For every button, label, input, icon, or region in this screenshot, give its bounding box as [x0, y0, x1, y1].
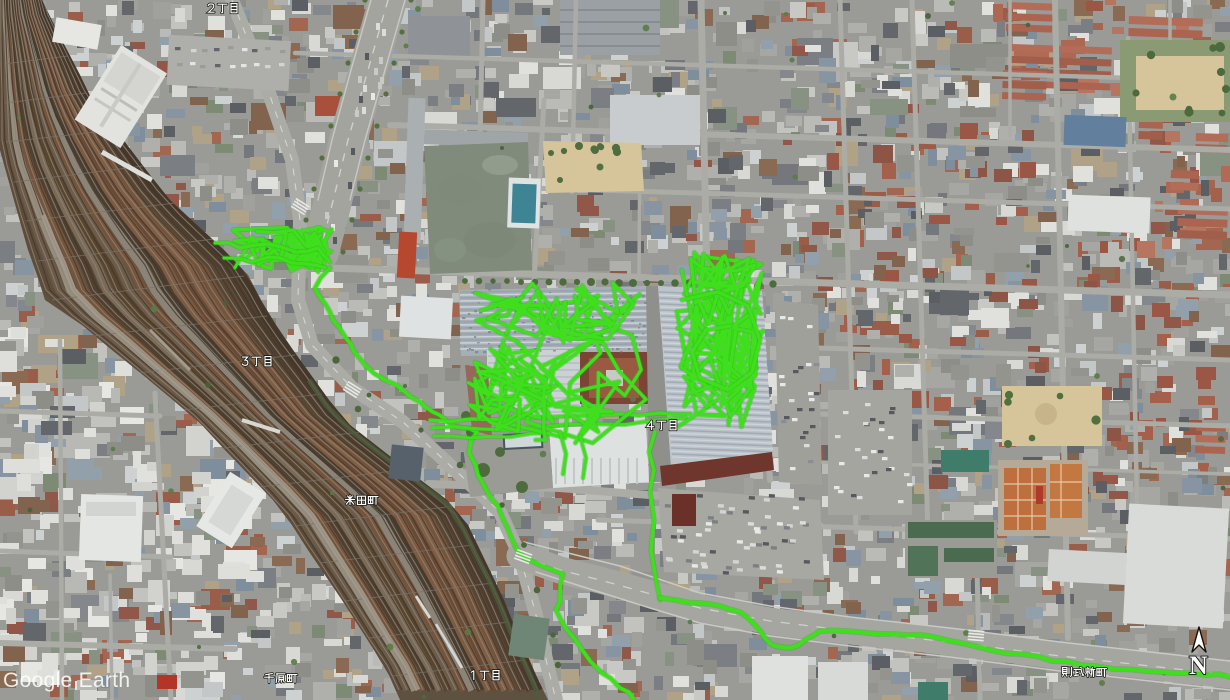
svg-text:N: N: [1189, 651, 1208, 680]
svg-text:Google Earth: Google Earth: [3, 669, 130, 692]
